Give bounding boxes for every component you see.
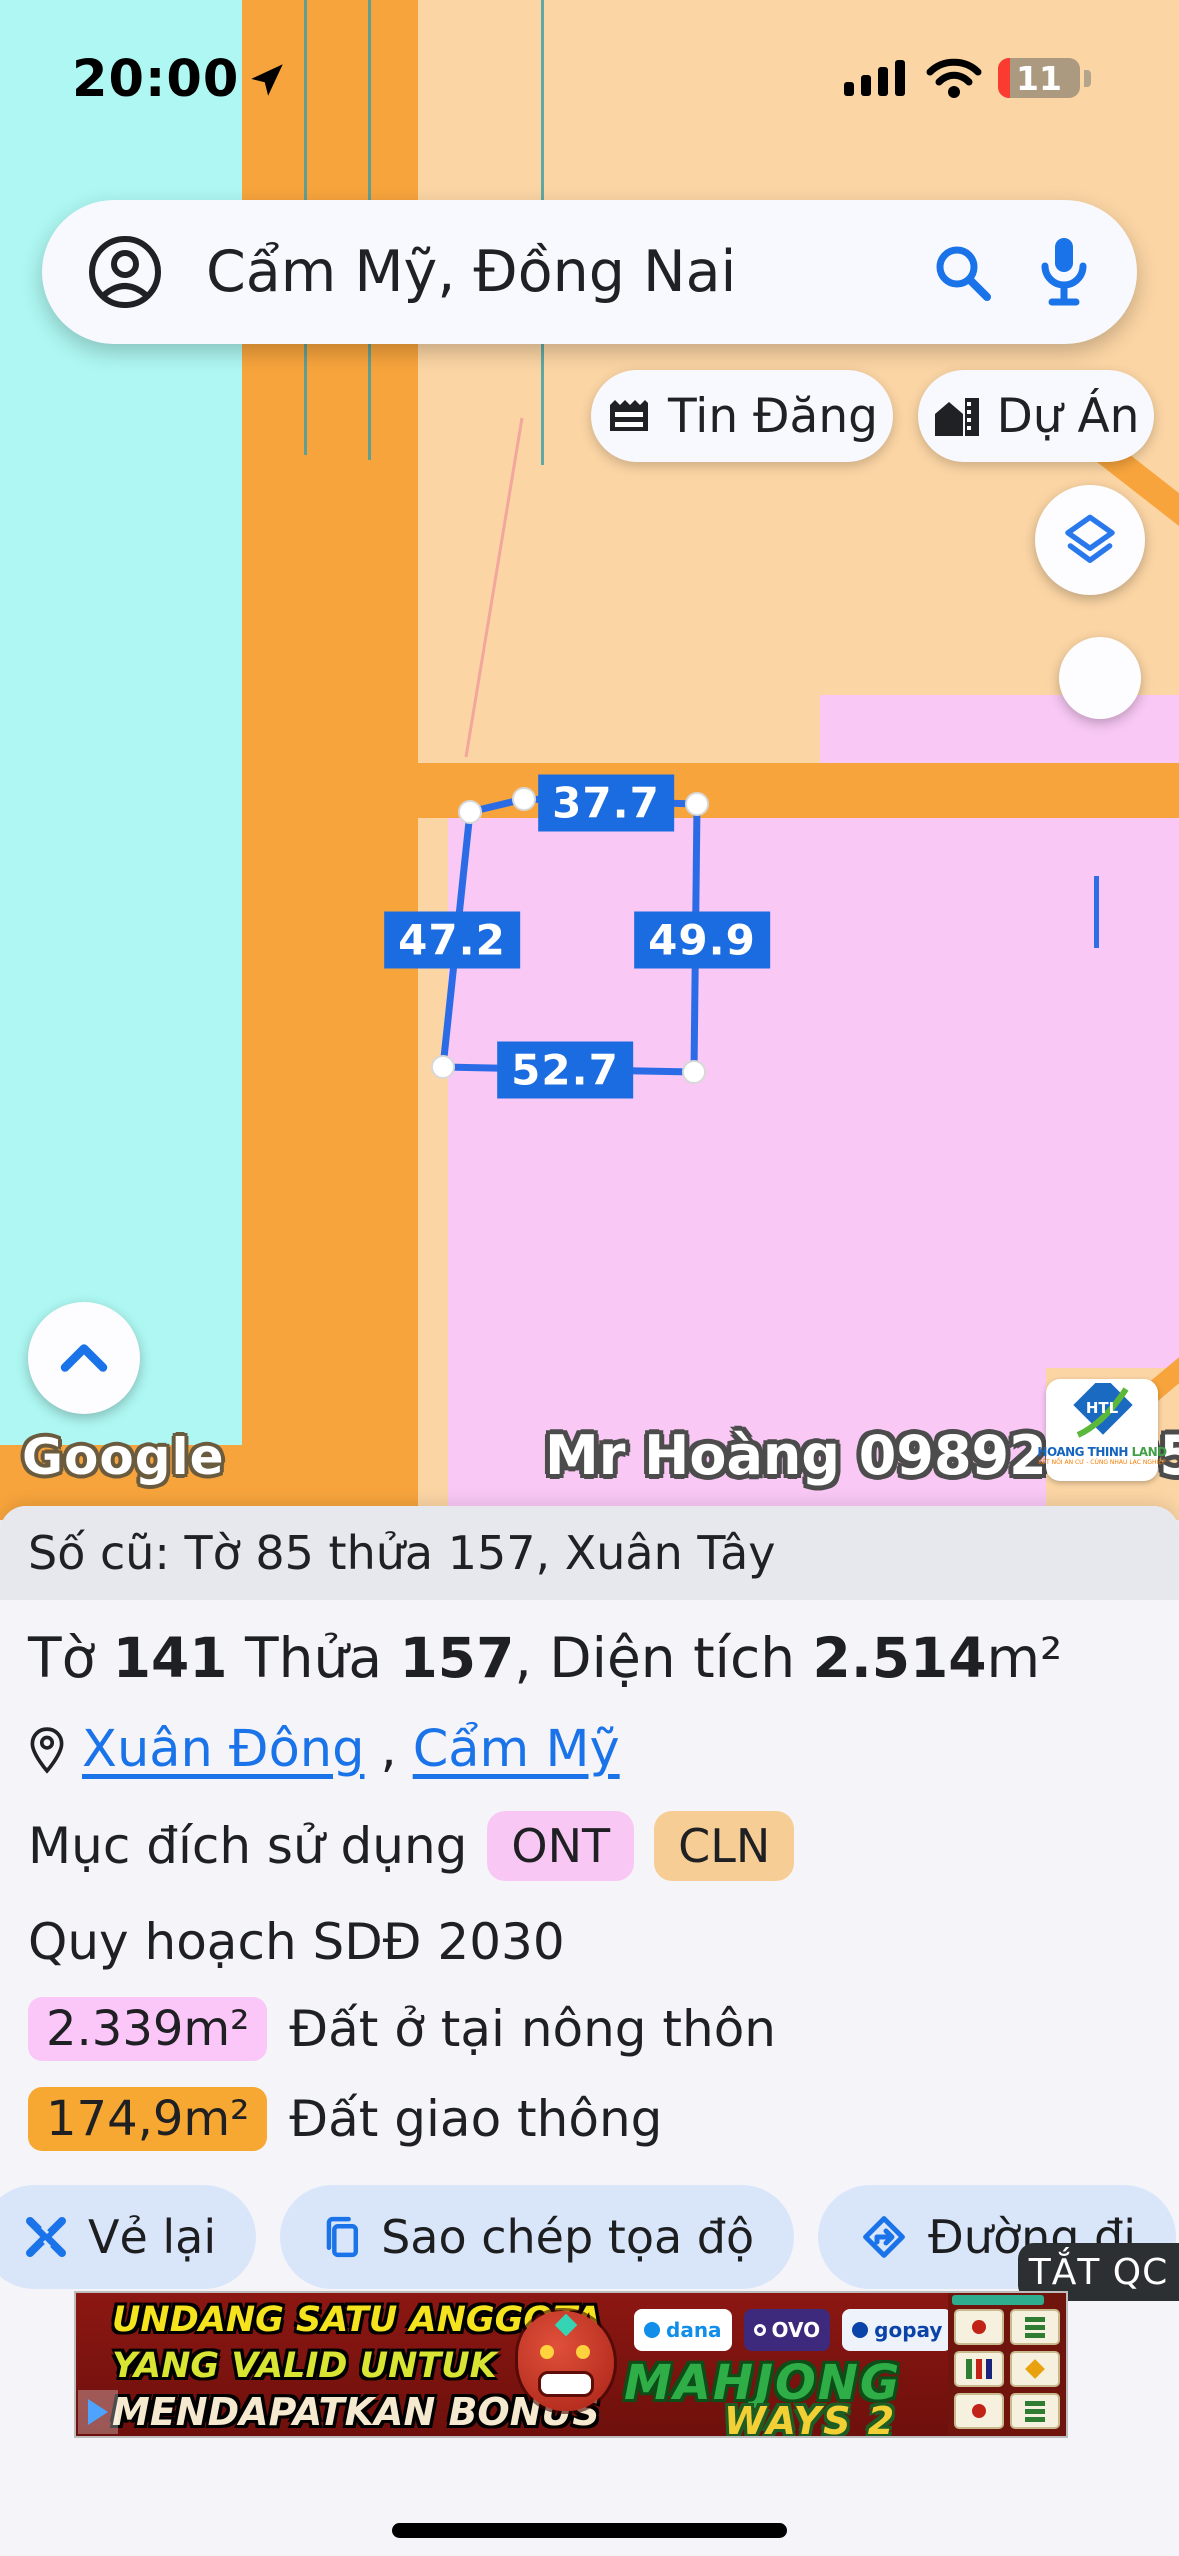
listings-icon [606,393,652,439]
payment-ovo: OVO [744,2309,831,2351]
svg-text:HTL: HTL [1086,1399,1119,1417]
battery-percent: 11 [998,58,1080,98]
vendor-name: HOANG THINH LAND [1037,1445,1166,1459]
planning-area-badge: 2.339m² [28,1997,267,2061]
map-pin-icon [28,1726,66,1774]
measurement-top: 37.7 [538,775,674,832]
google-logo: Google [22,1428,225,1486]
ward-link[interactable]: Xuân Đông [82,1720,364,1779]
redraw-icon [22,2213,70,2261]
old-parcel-number: Số cũ: Tờ 85 thửa 157, Xuân Tây [0,1506,1179,1600]
ad-dragon-art [504,2301,632,2433]
copy-coordinates-button[interactable]: Sao chép tọa độ [280,2185,794,2289]
payment-dana: dana [634,2309,732,2351]
cellular-signal-icon [844,58,910,98]
dana-icon [644,2322,660,2338]
measurement-right: 49.9 [634,912,770,969]
map-zoom-handle[interactable] [1059,637,1141,719]
vendor-tagline: KẾT NỐI AN CƯ - CÙNG NHAU LẠC NGHIỆP [1038,1459,1165,1466]
ad-banner[interactable]: UNDANG SATU ANGGOTA YANG VALID UNTUK MEN… [74,2291,1068,2438]
listings-label: Tin Đăng [668,389,878,444]
land-use-badge-cln: CLN [654,1811,794,1881]
collapse-panel-button[interactable] [28,1302,140,1414]
planning-item-traffic: 174,9m² Đất giao thông [28,2087,1151,2151]
battery-indicator: 11 [998,58,1080,98]
planning-area-badge: 174,9m² [28,2087,267,2151]
status-time: 20:00 [72,50,285,109]
account-icon[interactable] [86,233,164,311]
ad-payment-badges: dana OVO gopay [634,2309,952,2351]
map-chip-row: Tin Đăng Dự Án [0,370,1179,462]
map-layers-button[interactable] [1035,485,1145,595]
status-bar: 20:00 11 [0,0,1179,130]
vendor-diamond-icon: HTL [1060,1383,1144,1445]
redraw-label: Vẻ lại [88,2210,216,2264]
measurement-left: 47.2 [384,912,520,969]
gopay-icon [852,2322,868,2338]
projects-label: Dự Án [997,389,1140,444]
projects-icon [933,394,981,438]
ad-mahjong-tiles [948,2293,1066,2438]
location-separator: , [380,1720,396,1779]
copy-label: Sao chép tọa độ [381,2210,754,2264]
ovo-icon [754,2324,766,2336]
planning-item-label: Đất giao thông [289,2090,662,2148]
projects-button[interactable]: Dự Án [918,370,1154,462]
land-use-row: Mục đích sử dụng ONT CLN [28,1811,1151,1881]
adchoices-icon[interactable] [78,2390,118,2434]
listings-button[interactable]: Tin Đăng [591,370,893,462]
directions-icon [858,2211,910,2263]
action-toolbar: Vẻ lại Sao chép tọa độ Đường đi [0,2185,1151,2289]
parcel-location: Xuân Đông , Cẩm Mỹ [28,1720,1151,1779]
payment-gopay: gopay [842,2309,952,2351]
copy-icon [320,2211,363,2263]
ad-brand-subtitle: WAYS 2 [724,2399,896,2438]
vendor-logo: HTL HOANG THINH LAND KẾT NỐI AN CƯ - CÙN… [1046,1379,1158,1481]
location-active-icon [249,62,285,98]
chevron-up-icon [46,1330,122,1386]
parcel-summary: Tờ 141 Thửa 157, Diện tích 2.514m² [28,1626,1151,1690]
search-icon[interactable] [929,239,995,305]
parcel-info-panel: Số cũ: Tờ 85 thửa 157, Xuân Tây Tờ 141 T… [0,1506,1179,2556]
planning-item-residential: 2.339m² Đất ở tại nông thôn [28,1997,1151,2061]
search-bar[interactable]: Cẩm Mỹ, Đồng Nai [42,200,1137,344]
land-use-label: Mục đích sử dụng [28,1817,467,1875]
wifi-icon [926,58,982,98]
redraw-button[interactable]: Vẻ lại [0,2185,256,2289]
mic-icon[interactable] [1035,236,1093,308]
app-screen: 37.7 47.2 49.9 52.7 Google Mr Hoàng 0989… [0,0,1179,2556]
layers-icon [1057,509,1123,571]
land-use-badge-ont: ONT [487,1811,634,1881]
battery-nub [1084,70,1091,87]
measurement-bottom: 52.7 [497,1042,633,1099]
district-link[interactable]: Cẩm Mỹ [413,1720,620,1779]
planning-title: Quy hoạch SDĐ 2030 [28,1913,1151,1971]
status-icons: 11 [844,58,1091,98]
planning-item-label: Đất ở tại nông thôn [289,2000,776,2058]
home-indicator[interactable] [392,2523,787,2538]
search-input[interactable]: Cẩm Mỹ, Đồng Nai [206,239,929,305]
